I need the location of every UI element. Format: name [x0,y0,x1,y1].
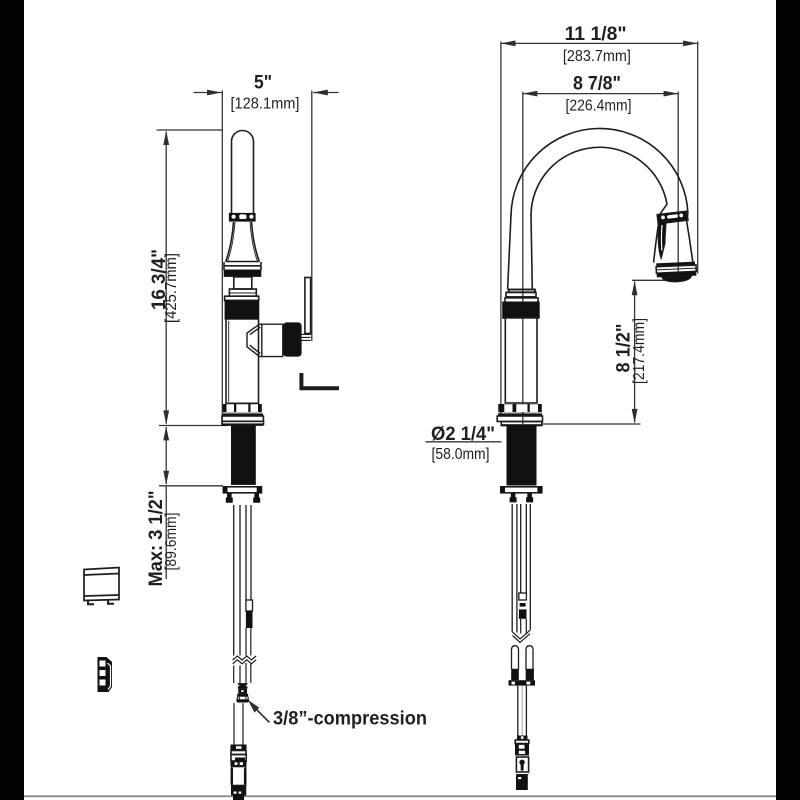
svg-text:[283.7mm]: [283.7mm] [563,48,631,65]
svg-text:5": 5" [254,72,272,94]
svg-text:11 1/8": 11 1/8" [565,23,627,45]
svg-text:[425.7mm]: [425.7mm] [163,253,180,323]
svg-text:[217.4mm]: [217.4mm] [631,318,648,384]
svg-text:3/8”-compression: 3/8”-compression [273,708,427,730]
svg-text:[226.4mm]: [226.4mm] [566,98,632,115]
svg-text:[89.6mm]: [89.6mm] [163,513,180,571]
svg-text:8 7/8": 8 7/8" [573,73,621,95]
svg-text:Ø2 1/4": Ø2 1/4" [431,423,495,445]
svg-text:[58.0mm]: [58.0mm] [432,446,490,463]
svg-text:[128.1mm]: [128.1mm] [231,96,300,113]
